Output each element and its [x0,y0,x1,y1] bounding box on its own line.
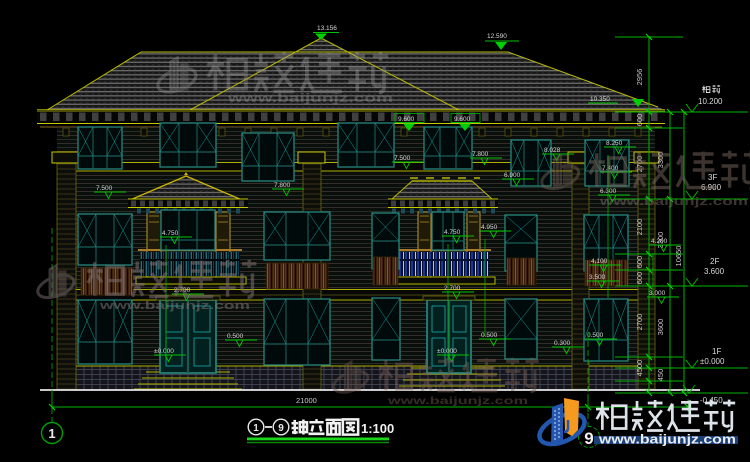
svg-text:4.950: 4.950 [481,224,498,231]
svg-text:3.000: 3.000 [649,290,666,297]
svg-text:10.200: 10.200 [698,97,723,106]
svg-text:7.500: 7.500 [96,185,113,192]
svg-text:4.750: 4.750 [444,229,461,236]
svg-text:3F: 3F [708,173,717,182]
svg-text:8.250: 8.250 [606,140,623,147]
svg-text:9: 9 [278,423,284,434]
svg-text:7.800: 7.800 [274,182,291,189]
svg-text:2.700: 2.700 [444,285,461,292]
svg-text:10.350: 10.350 [590,96,610,103]
svg-text:8.028: 8.028 [544,147,561,154]
svg-text:1F: 1F [712,347,721,356]
svg-text:2F: 2F [710,257,719,266]
svg-text:600: 600 [635,256,644,269]
svg-text:2956: 2956 [635,69,644,86]
svg-text:1:100: 1:100 [361,421,394,436]
svg-text:www.baijunjz.com: www.baijunjz.com [598,432,736,447]
svg-text:6.900: 6.900 [504,172,521,179]
svg-text:www.baijunjz.com: www.baijunjz.com [226,91,393,105]
svg-text:±0.000: ±0.000 [700,357,725,366]
svg-text:±0.000: ±0.000 [154,348,174,355]
svg-text:600: 600 [635,272,644,285]
svg-text:12.590: 12.590 [487,33,507,40]
svg-text:600: 600 [635,114,644,127]
svg-text:4.100: 4.100 [591,258,608,265]
svg-text:2100: 2100 [635,219,644,236]
svg-text:±0.000: ±0.000 [437,348,457,355]
svg-text:21000: 21000 [296,396,317,405]
svg-text:2700: 2700 [635,314,644,331]
svg-text:0.300: 0.300 [554,340,571,347]
svg-text:10650: 10650 [674,246,683,267]
svg-text:www.baijunjz.com: www.baijunjz.com [386,395,528,407]
svg-text:0.500: 0.500 [587,332,604,339]
svg-text:3600: 3600 [656,319,665,336]
svg-text:3.500: 3.500 [589,274,606,281]
svg-text:3.600: 3.600 [704,267,725,276]
svg-text:www.baijunjz.com: www.baijunjz.com [98,300,250,312]
svg-text:7.500: 7.500 [394,155,411,162]
svg-text:0.500: 0.500 [481,332,498,339]
svg-text:4500: 4500 [635,360,644,377]
svg-text:1: 1 [253,423,259,434]
svg-text:450: 450 [656,369,665,382]
svg-text:9.600: 9.600 [398,116,415,123]
svg-text:www.baijunjz.com: www.baijunjz.com [598,196,748,208]
svg-text:7.800: 7.800 [472,151,489,158]
svg-text:9: 9 [584,429,593,448]
svg-text:4.750: 4.750 [162,230,179,237]
svg-text:4.200: 4.200 [651,238,668,245]
svg-text:13.156: 13.156 [317,25,337,32]
svg-text:1: 1 [48,426,55,441]
svg-text:0.500: 0.500 [227,333,244,340]
svg-text:9.600: 9.600 [454,116,471,123]
